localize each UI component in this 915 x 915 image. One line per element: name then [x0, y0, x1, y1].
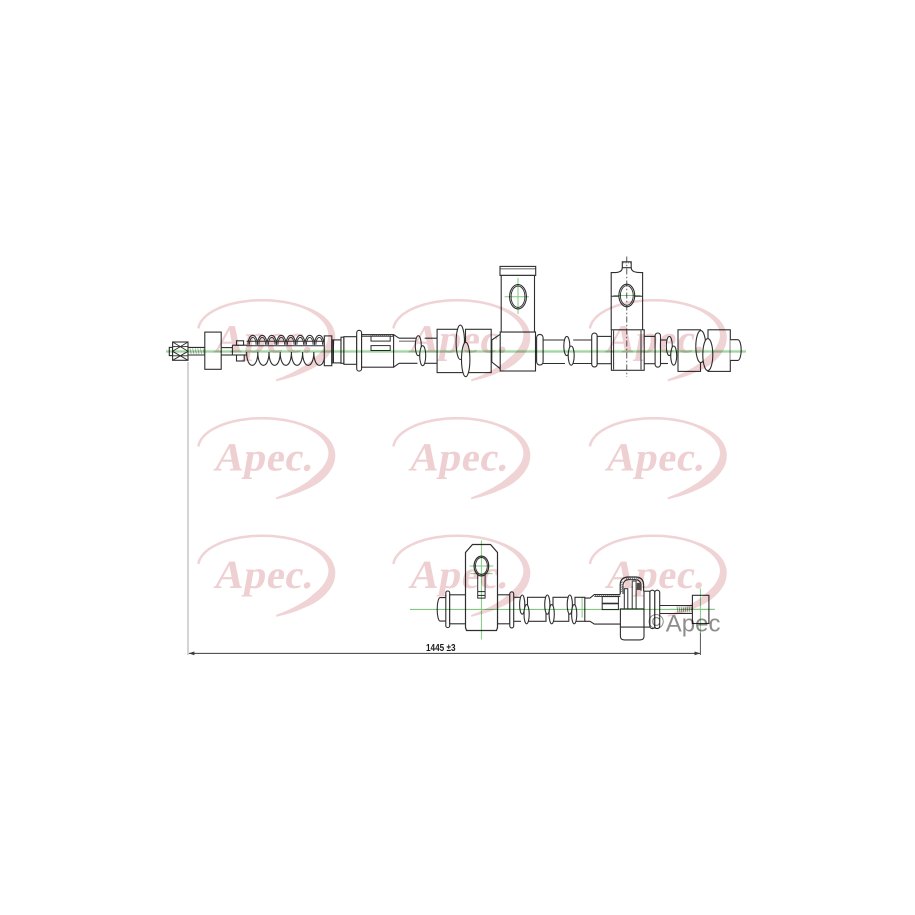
- svg-text:1445 ±3: 1445 ±3: [426, 643, 456, 654]
- svg-text:Apec.: Apec.: [603, 435, 710, 480]
- svg-text:©: ©: [648, 610, 664, 634]
- svg-text:Apec.: Apec.: [603, 317, 710, 362]
- svg-text:Apec.: Apec.: [211, 317, 318, 362]
- svg-text:Apec.: Apec.: [406, 552, 513, 597]
- svg-text:Apec.: Apec.: [406, 435, 513, 480]
- svg-text:Apec.: Apec.: [211, 435, 318, 480]
- svg-text:Apec.: Apec.: [406, 317, 513, 362]
- svg-text:Apec: Apec: [666, 611, 721, 638]
- svg-text:Apec.: Apec.: [603, 552, 710, 597]
- svg-text:Apec.: Apec.: [211, 552, 318, 597]
